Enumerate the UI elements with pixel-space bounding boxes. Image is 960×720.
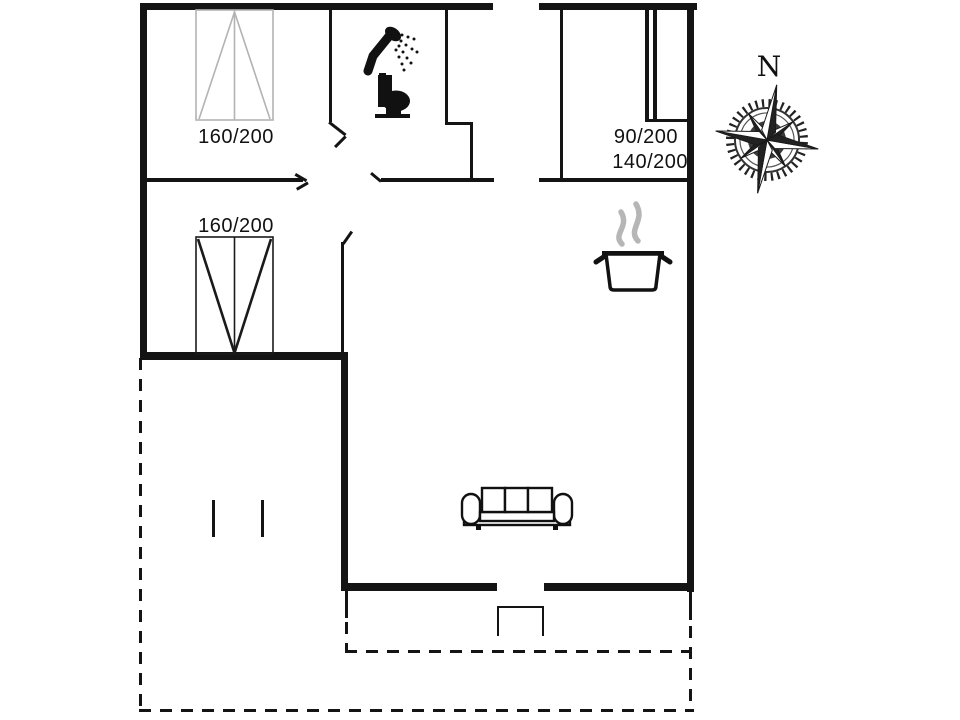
bed-size-label: 140/200 — [596, 151, 688, 173]
right-outer-wall — [687, 3, 694, 592]
step-left — [497, 606, 499, 636]
top-wall-left — [140, 3, 493, 10]
toilet-icon — [370, 73, 414, 121]
terrace-edge-right — [689, 626, 692, 712]
bathroom-left-wall — [329, 8, 332, 122]
living-west-wall — [341, 352, 348, 590]
door-mark-bedroom2 — [342, 231, 353, 245]
terrace-stub-right — [689, 590, 692, 620]
bathroom-right-wall — [445, 8, 448, 124]
living-south-wall-right — [544, 583, 694, 591]
bedroom2-right-wall — [341, 242, 344, 354]
steaming-pot-icon — [593, 200, 673, 295]
shower-icon — [360, 25, 420, 80]
double-bed-icon — [195, 236, 274, 356]
door-mark-bathroom — [328, 121, 346, 136]
terrace-edge-bottom — [139, 709, 694, 712]
living-south-wall-left — [341, 583, 497, 591]
terrace-mark — [261, 500, 264, 537]
corridor-wall-mid — [381, 178, 494, 182]
terrace-divider — [345, 650, 689, 653]
compass-north-label: N — [757, 50, 782, 83]
corridor-wall-right — [539, 178, 694, 182]
step-right — [542, 606, 544, 636]
bunk-bed-icon — [645, 8, 649, 122]
step-top — [497, 606, 544, 608]
entry-nook-top-wall — [445, 122, 473, 125]
floor-plan: 160/200 160/200 90/200 140/200 — [0, 0, 960, 720]
double-bed-icon — [195, 9, 274, 121]
terrace-stub-left — [345, 590, 348, 618]
bed-size-label: 160/200 — [190, 215, 282, 237]
bed-size-label: 160/200 — [190, 126, 282, 148]
bedroom3-left-wall — [560, 8, 563, 182]
sofa-icon — [458, 484, 576, 532]
terrace-divider-left — [345, 622, 348, 652]
door-mark-corridor-b — [296, 182, 309, 191]
compass-rose-icon: N — [705, 40, 830, 205]
terrace-mark — [212, 500, 215, 537]
bunk-bed-base — [645, 119, 688, 122]
door-mark-bathroom-tick — [334, 135, 347, 148]
entry-nook-right-wall — [470, 122, 473, 182]
terrace-edge-left — [139, 358, 142, 711]
bunk-bed-icon — [653, 8, 657, 122]
corridor-wall-left — [143, 178, 303, 182]
bed-size-label: 90/200 — [596, 126, 678, 148]
